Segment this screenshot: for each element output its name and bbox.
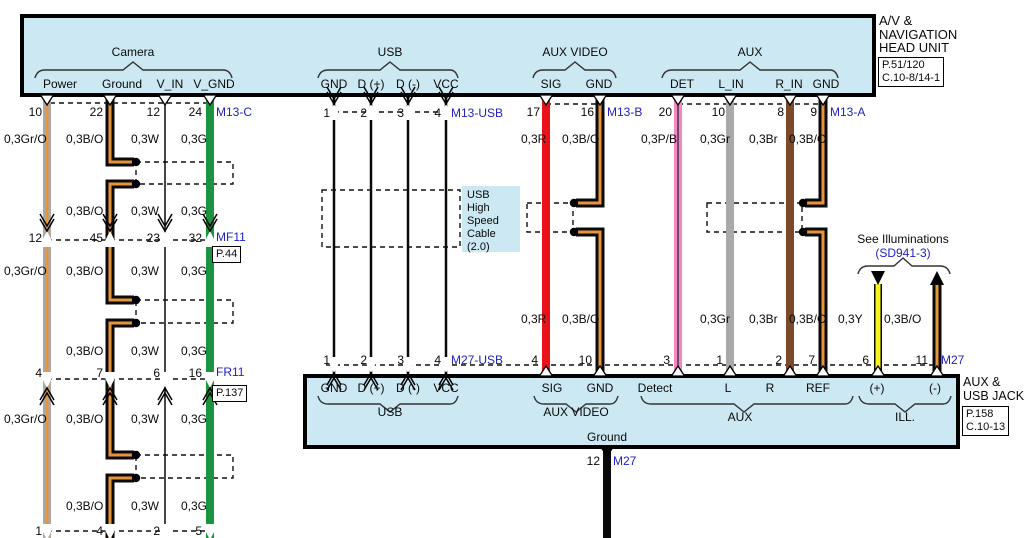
group-label: USB: [378, 406, 403, 418]
pin-number: 3: [663, 354, 670, 366]
wiring-diagram: A/V & NAVIGATION HEAD UNIT P.51/120 C.10…: [0, 0, 1024, 538]
group-label: AUX: [728, 411, 753, 423]
wire-label: 0,3Gr/O: [4, 133, 47, 145]
wire-label: 0,3W: [131, 345, 159, 357]
pin-label: Power: [43, 78, 77, 90]
connector-label: M13-USB: [451, 107, 503, 119]
group-label: AUX VIDEO: [543, 406, 608, 418]
wire-label: 0,3Br: [749, 313, 778, 325]
note-label: (SD941-3): [875, 247, 930, 259]
pin-label: D (+): [358, 78, 385, 90]
pin-number: 23: [147, 232, 160, 244]
pin-number: 2: [360, 354, 367, 366]
pin-number: 4: [434, 107, 441, 119]
section-title: Camera: [112, 46, 155, 58]
wire-label: 0,3Y: [838, 313, 863, 325]
wire-label: 0,3W: [131, 265, 159, 277]
pin-number: 45: [90, 232, 103, 244]
wire-label: 0,3Br: [749, 133, 778, 145]
pin-number: 2: [153, 525, 160, 537]
camera-ground-wire: [110, 95, 134, 538]
wire-label: 0,3W: [131, 133, 159, 145]
pin-label: DET: [670, 78, 694, 90]
connector-notch: [817, 95, 830, 105]
group-label: ILL.: [895, 411, 915, 423]
ground-pin-triangle: [600, 447, 614, 457]
pin-number: 4: [434, 354, 441, 366]
pin-number: 7: [96, 367, 103, 379]
connector-notch: [784, 95, 797, 105]
pin-number: 3: [397, 354, 404, 366]
wire-label: 0,3G: [181, 345, 207, 357]
connector-label: FR11: [216, 366, 244, 378]
wire-label: 0,3W: [131, 500, 159, 512]
pin-number: 1: [716, 354, 723, 366]
aux-usb-jack-ref-box: P.158 C.10-13: [962, 406, 1009, 436]
section-title: USB: [378, 46, 403, 58]
connector-notch: [724, 366, 737, 376]
pin-number: 12: [29, 232, 42, 244]
pin-number: 12: [587, 455, 600, 467]
wire-label: 0,3B/O: [66, 133, 103, 145]
pin-number: 11: [916, 354, 928, 366]
aux-usb-jack-title: AUX & USB JACK: [963, 376, 1024, 403]
pin-number: 2: [775, 354, 782, 366]
pin-number: 4: [96, 525, 103, 537]
pin-number: 10: [712, 106, 725, 118]
connector-label: M27-USB: [451, 354, 503, 366]
pin-number: 7: [808, 354, 815, 366]
pin-label: (+): [870, 382, 885, 394]
pin-number: 22: [90, 106, 103, 118]
pin-label: D (+): [358, 382, 385, 394]
pin-number: 3: [397, 107, 404, 119]
pin-number: 16: [581, 106, 594, 118]
pin-label: L: [725, 382, 732, 394]
pin-number: 8: [777, 106, 784, 118]
wire-label: 0,3Gr/O: [4, 413, 47, 425]
pin-number: 20: [659, 106, 672, 118]
wire-label: 0,3B/O: [66, 345, 103, 357]
wire-label: 0,3B/O: [562, 313, 599, 325]
pin-number: 12: [147, 106, 160, 118]
section-title: AUX VIDEO: [542, 46, 607, 58]
pin-label: REF: [806, 382, 830, 394]
wire-label: 0,3B/O: [789, 313, 826, 325]
wire-label: 0,3R: [521, 133, 546, 145]
pin-label: GND: [321, 78, 348, 90]
pin-number: 6: [862, 354, 869, 366]
connector-notch: [817, 366, 830, 376]
connector-label: M27: [613, 455, 636, 467]
pin-label: D (-): [396, 78, 420, 90]
wire-label: 0,3Gr: [700, 313, 730, 325]
note-label: See Illuminations: [857, 233, 948, 245]
connector-label: MF11: [216, 231, 246, 243]
head-unit-title: A/V & NAVIGATION HEAD UNIT: [879, 14, 957, 55]
wire-label: 0,3G: [181, 500, 207, 512]
connector-label: M13-B: [607, 106, 642, 118]
pin-number: 4: [35, 367, 42, 379]
pin-number: 16: [189, 367, 202, 379]
wire-label: 0,3B/O: [66, 500, 103, 512]
usb-cable-note: USB High Speed Cable (2.0): [462, 186, 520, 252]
wire-label: 0,3B/O: [66, 205, 103, 217]
wire-label: 0,3G: [181, 133, 207, 145]
connector-notch: [672, 366, 685, 376]
pin-label: R_IN: [775, 78, 802, 90]
wire-label: 0,3G: [181, 413, 207, 425]
pin-label: V_GND: [193, 78, 234, 90]
wire-label: 0,3Gr/O: [4, 265, 47, 277]
pin-label: V_IN: [157, 78, 184, 90]
usb-wires: [334, 95, 446, 376]
illumination-arrows: [871, 271, 944, 285]
pin-label: L_IN: [718, 78, 743, 90]
wire-label: 0,3G: [181, 265, 207, 277]
wire-label: 0,3B/O: [562, 133, 599, 145]
pin-number: 1: [323, 107, 330, 119]
pin-label: GND: [586, 78, 613, 90]
connector-label: M13-C: [216, 106, 252, 118]
pin-number: 32: [189, 232, 202, 244]
pin-number: 17: [527, 106, 540, 118]
pin-number: 9: [810, 106, 817, 118]
head-unit-ref-box: P.51/120 C.10-8/14-1: [878, 57, 944, 87]
connector-notch: [931, 366, 944, 376]
pin-label: SIG: [541, 78, 562, 90]
pin-label: R: [766, 382, 775, 394]
pin-label: VCC: [433, 382, 458, 394]
pin-label: SIG: [542, 382, 563, 394]
wire-label: 0,3P/B: [641, 133, 677, 145]
pin-label: VCC: [433, 78, 458, 90]
wire-label: 0,3W: [131, 205, 159, 217]
mf11-page-ref: P.44: [212, 246, 241, 263]
connector-label: M13-A: [830, 106, 865, 118]
connector-notch: [872, 366, 885, 376]
wire-label: 0,3B/O: [66, 265, 103, 277]
pin-label: GND: [813, 78, 840, 90]
wire-label: 0,3B/O: [789, 133, 826, 145]
pin-number: 1: [35, 525, 42, 537]
connector-notch: [784, 366, 797, 376]
pin-number: 6: [153, 367, 160, 379]
connector-chevron: [102, 372, 118, 388]
wire-label: 0,3W: [131, 413, 159, 425]
wire-label: 0,3G: [181, 205, 207, 217]
pin-label: (-): [929, 382, 941, 394]
pin-number: 2: [360, 107, 367, 119]
pin-label: Ground: [587, 431, 627, 443]
pin-number: 1: [323, 354, 330, 366]
pin-label: Ground: [102, 78, 142, 90]
pin-number: 5: [195, 525, 202, 537]
pin-label: D (-): [396, 382, 420, 394]
wire-label: 0,3Gr: [700, 133, 730, 145]
connector-notch: [594, 366, 607, 376]
pin-number: 10: [579, 354, 592, 366]
pin-label: Detect: [638, 382, 673, 394]
wire-label: 0,3R: [521, 313, 546, 325]
connector-notch: [540, 366, 553, 376]
wire-label: 0,3B/O: [884, 313, 921, 325]
pin-label: GND: [587, 382, 614, 394]
pin-number: 4: [531, 354, 538, 366]
connector-chevron: [102, 231, 118, 247]
pin-number: 24: [189, 106, 202, 118]
connector-label: M27: [941, 354, 964, 366]
pin-label: GND: [321, 382, 348, 394]
fr11-page-ref: P.137: [212, 385, 247, 402]
section-title: AUX: [738, 46, 763, 58]
wire-label: 0,3B/O: [66, 413, 103, 425]
pin-number: 10: [29, 106, 42, 118]
